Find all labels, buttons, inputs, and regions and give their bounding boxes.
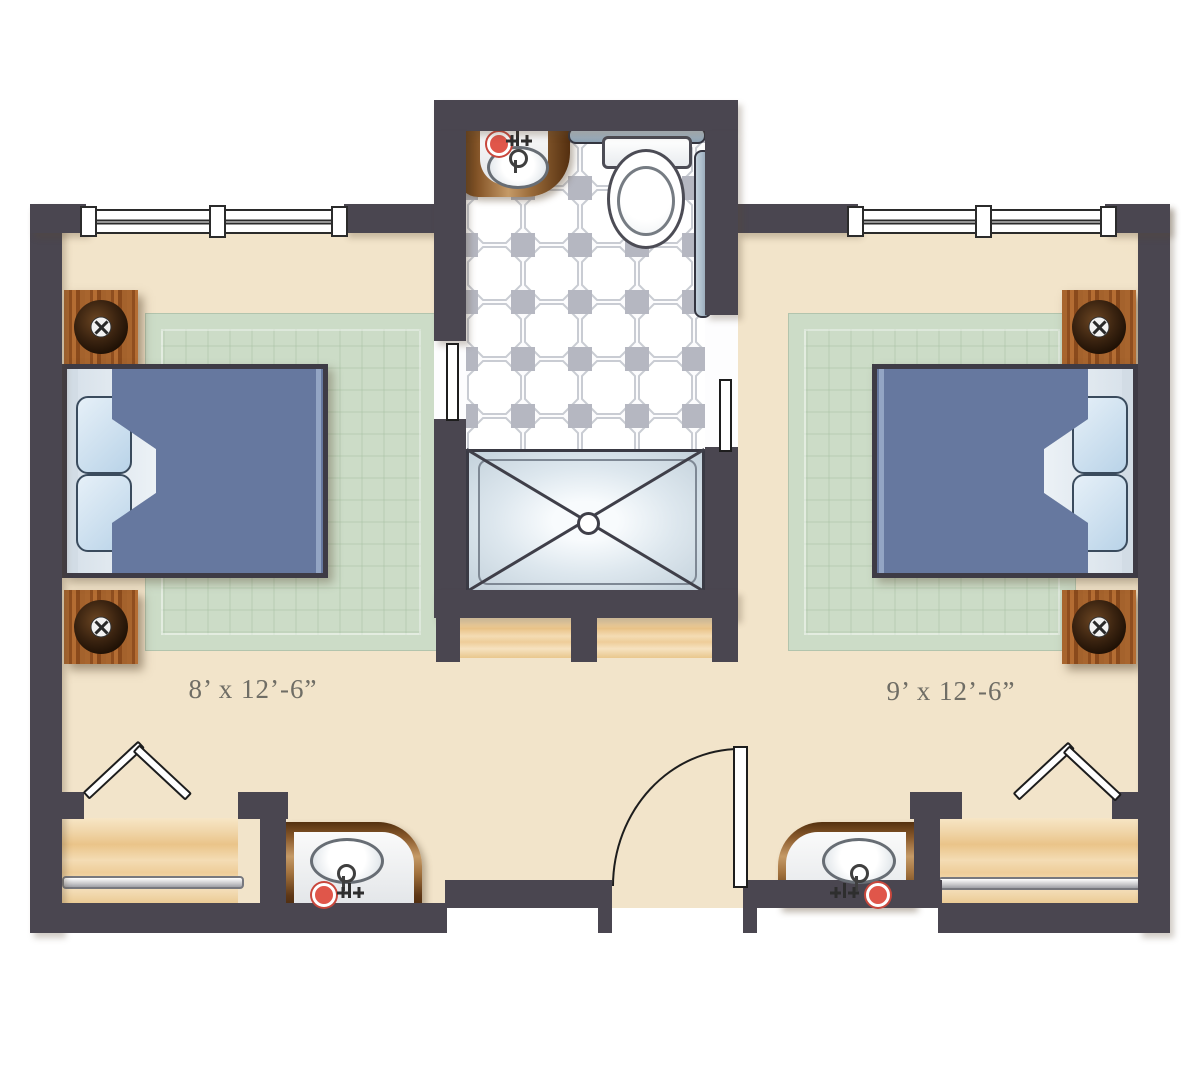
cubby-floor-right — [597, 616, 712, 658]
entry-jamb-right — [743, 903, 757, 933]
wall-bathroom-top — [434, 100, 738, 131]
right-window-end-cap — [1100, 206, 1117, 237]
wall-bathroom-left-upper — [434, 131, 466, 341]
cubby-floor-left — [460, 616, 571, 658]
left-window-end-cap — [331, 206, 348, 237]
wall-stub — [712, 618, 738, 662]
faucet-stem-icon — [514, 160, 517, 173]
faucet-icon — [509, 149, 528, 168]
wall-top-right-a — [737, 204, 858, 233]
wall-top-left-b — [344, 204, 436, 233]
right-closet-jamb-left — [910, 792, 962, 819]
left-nightstand-bottom — [64, 590, 138, 664]
wall-bottom-left-upper — [445, 880, 612, 908]
entry-jamb-left — [598, 903, 612, 933]
entry-door-leaf — [733, 746, 748, 888]
lamp-icon — [74, 600, 128, 654]
hot-water-knob-icon — [866, 883, 890, 907]
left-nightstand-top — [64, 290, 138, 364]
plus-mark-icon — [337, 887, 348, 898]
room-dimension-label-left: 8’ x 12’-6” — [98, 672, 408, 706]
lamp-finial-icon — [1089, 317, 1110, 338]
lamp-icon — [74, 300, 128, 354]
faucet-handle-tick — [516, 131, 519, 146]
wall-stub — [436, 618, 460, 662]
wall-shower-bottom — [434, 590, 738, 618]
faucet-handle-tick — [843, 883, 846, 898]
left-closet-stub — [260, 819, 286, 908]
right-nightstand-bottom — [1062, 590, 1136, 664]
shower-drain-icon — [577, 512, 600, 535]
wall-bathroom-right-upper — [705, 131, 738, 315]
right-closet-stub — [914, 819, 940, 908]
wall-bathroom-right-lower — [705, 447, 738, 592]
room-dimension-label-right: 9’ x 12’-6” — [796, 674, 1106, 708]
plus-mark-icon — [521, 135, 532, 146]
faucet-handle-tick — [348, 883, 351, 898]
lamp-finial-icon — [1089, 617, 1110, 638]
right-window-end-cap — [847, 206, 864, 237]
comforter-highlight — [879, 369, 884, 573]
left-closet-jamb-left — [40, 792, 84, 819]
left-window-mullion — [209, 205, 226, 238]
floor-plan: 8’ x 12’-6” 9’ x 12’-6” — [0, 0, 1200, 1078]
right-window-mullion — [975, 205, 992, 238]
wall-stub — [571, 618, 597, 662]
lamp-finial-icon — [91, 317, 112, 338]
faucet-icon — [850, 864, 869, 883]
wall-bathroom-left-lower — [434, 419, 466, 592]
lamp-icon — [1072, 300, 1126, 354]
wall-left-outer — [30, 204, 62, 933]
wall-bottom-right-deep — [938, 903, 1170, 933]
left-closet-jamb-right — [238, 792, 288, 819]
comforter-highlight — [316, 369, 321, 573]
wall-bottom-left-deep — [30, 903, 447, 933]
right-closet-rod — [938, 877, 1144, 890]
faucet-icon — [337, 864, 356, 883]
left-window-end-cap — [80, 206, 97, 237]
wall-right-outer — [1138, 204, 1170, 933]
toilet-seat-icon — [617, 166, 675, 236]
lamp-icon — [1072, 600, 1126, 654]
left-closet-floor — [62, 818, 238, 906]
plus-mark-icon — [830, 887, 841, 898]
plus-mark-icon — [353, 887, 364, 898]
right-closet-floor — [940, 818, 1138, 906]
hot-water-knob-icon — [312, 883, 336, 907]
bathroom-right-door-leaf — [719, 379, 732, 452]
right-nightstand-top — [1062, 290, 1136, 364]
bathroom-left-door-leaf — [446, 343, 459, 421]
lamp-finial-icon — [91, 617, 112, 638]
wall-top-left-a — [30, 204, 86, 233]
plus-mark-icon — [848, 887, 859, 898]
left-closet-rod — [62, 876, 244, 889]
